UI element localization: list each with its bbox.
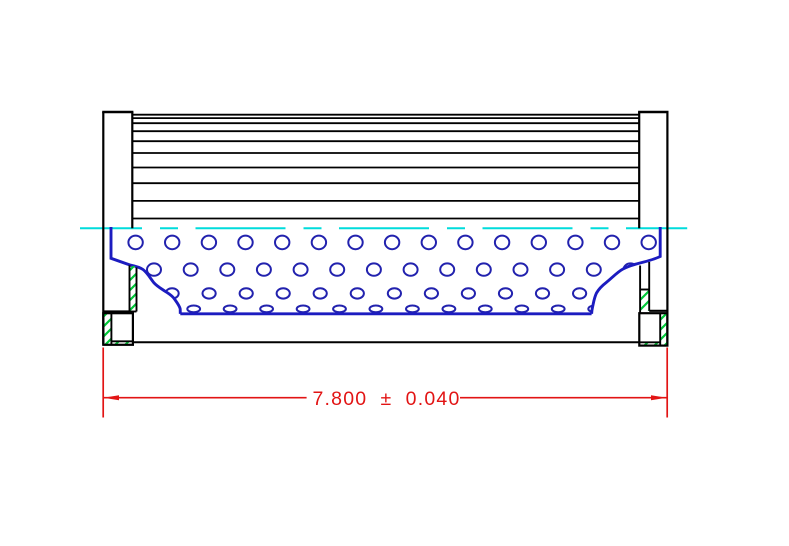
svg-text:7.800 ± 0.040: 7.800 ± 0.040: [313, 388, 461, 410]
